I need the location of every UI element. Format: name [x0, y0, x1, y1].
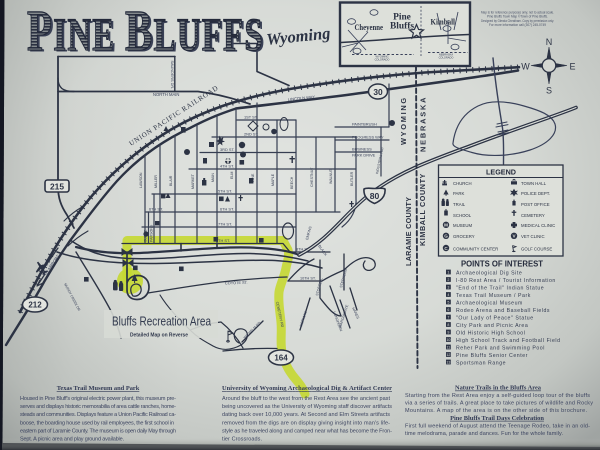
svg-text:PINE BLUFFS: PINE BLUFFS — [27, 0, 264, 63]
svg-text:Reher Park and Swimming Pool: Reher Park and Swimming Pool — [456, 345, 545, 351]
svg-text:PARK: PARK — [453, 191, 465, 196]
svg-text:1ST ST.: 1ST ST. — [244, 115, 258, 120]
svg-text:Sportsman Range: Sportsman Range — [456, 360, 506, 366]
svg-text:GOLF COURSE: GOLF COURSE — [521, 246, 552, 251]
svg-text:City Park and Picnic Area: City Park and Picnic Area — [456, 323, 528, 329]
svg-text:Pine Bluffs Trail Days Celebra: Pine Bluffs Trail Days Celebration — [450, 415, 544, 422]
svg-text:High School Track and Football: High School Track and Football Field — [456, 338, 561, 344]
svg-text:MEDICAL CLINIC: MEDICAL CLINIC — [521, 223, 555, 228]
svg-text:Nature Trails in the Bluffs Ar: Nature Trails in the Bluffs Area — [455, 385, 542, 392]
svg-text:10: 10 — [446, 338, 450, 342]
svg-text:MAIN: MAIN — [211, 173, 215, 182]
svg-text:7TH ST.: 7TH ST. — [218, 222, 232, 227]
svg-text:GROCERY: GROCERY — [453, 234, 475, 239]
svg-text:COLORADO: COLORADO — [439, 56, 454, 60]
svg-text:Housed in Pine Bluff's origina: Housed in Pine Bluff's original electric… — [20, 396, 176, 402]
svg-text:serves and displays historic: serves and displays historic memorabilia… — [20, 404, 176, 410]
svg-text:Sept. A picnic area and play g: Sept. A picnic area and play ground avai… — [20, 437, 124, 443]
svg-text:Archaeological Museum: Archaeological Museum — [456, 300, 523, 306]
svg-text:TRAIL: TRAIL — [453, 202, 466, 207]
svg-text:PARK DRIVE: PARK DRIVE — [352, 153, 376, 158]
svg-text:University of Wyoming Archaeol: University of Wyoming Archaeological Dig… — [222, 385, 392, 392]
svg-text:3: 3 — [447, 285, 449, 289]
svg-text:5TH ST.: 5TH ST. — [218, 189, 232, 194]
svg-text:steads and communities. Displ: steads and communities. Displays feature… — [20, 412, 176, 418]
svg-text:via a series of trails. A gre: via a series of trails. A great place to… — [405, 400, 593, 406]
svg-text:LAWSON: LAWSON — [139, 172, 143, 188]
svg-text:1: 1 — [447, 270, 449, 274]
svg-text:POINTS OF INTEREST: POINTS OF INTEREST — [461, 260, 543, 269]
svg-text:164: 164 — [274, 353, 288, 362]
svg-text:9: 9 — [447, 330, 449, 334]
svg-text:COMMUNITY CENTER: COMMUNITY CENTER — [453, 246, 498, 251]
svg-text:8TH ST.: 8TH ST. — [216, 238, 230, 243]
svg-text:6TH ST.: 6TH ST. — [149, 207, 163, 212]
svg-text:N: N — [546, 37, 553, 47]
svg-text:LEGEND: LEGEND — [486, 168, 517, 177]
svg-text:tier Crossroads.: tier Crossroads. — [222, 437, 262, 443]
svg-text:MARKET: MARKET — [191, 173, 195, 189]
svg-text:time melodrama, parade and dan: time melodrama, parade and dances. Fun f… — [405, 431, 563, 437]
svg-text:COLORADO: COLORADO — [375, 58, 390, 62]
svg-text:7: 7 — [447, 315, 449, 319]
svg-text:being uncovered as the Univers: being uncovered as the University of Wyo… — [222, 404, 392, 410]
svg-text:Texas Trail Museum and Park: Texas Trail Museum and Park — [57, 385, 140, 392]
svg-text:MAPLE: MAPLE — [271, 173, 275, 186]
svg-text:6TH ST.: 6TH ST. — [220, 207, 234, 212]
svg-text:4TH ST.: 4TH ST. — [220, 164, 234, 169]
svg-text:dating back over 10,000 years.: dating back over 10,000 years. At Second… — [222, 412, 390, 418]
svg-text:Starting from the Rest Area en: Starting from the Rest Area enjoy a self… — [405, 393, 590, 399]
svg-text:S: S — [546, 86, 552, 96]
svg-text:I-80 Rest Area / Tourist Infor: I-80 Rest Area / Tourist Information — [456, 278, 556, 284]
svg-text:212: 212 — [28, 300, 42, 309]
svg-text:"End of the Trail" Indian Stat: "End of the Trail" Indian Statue — [456, 285, 544, 291]
svg-text:Old Historic High School: Old Historic High School — [456, 330, 525, 336]
svg-text:MUSEUM: MUSEUM — [453, 223, 473, 228]
svg-text:boose, the boarding house used: boose, the boarding house used by rail e… — [20, 420, 174, 426]
svg-text:4: 4 — [447, 293, 449, 297]
svg-text:For more information call (307: For more information call (307) 245-0749 — [489, 23, 546, 27]
svg-text:BUTLER: BUTLER — [350, 171, 354, 186]
svg-text:80: 80 — [370, 191, 380, 201]
svg-text:13: 13 — [446, 360, 450, 364]
svg-text:CEMETERY: CEMETERY — [521, 213, 545, 218]
svg-text:CHURCH: CHURCH — [453, 181, 472, 186]
svg-text:PROGRESS WAY: PROGRESS WAY — [352, 135, 384, 140]
svg-text:Mountains. A map of the area: Mountains. A map of the area is on the o… — [405, 408, 587, 414]
svg-text:2: 2 — [447, 278, 449, 282]
svg-text:8: 8 — [447, 323, 449, 327]
svg-text:W: W — [521, 62, 530, 72]
svg-text:SAUNDERS DR.: SAUNDERS DR. — [170, 61, 174, 90]
svg-text:NORTH MAIN: NORTH MAIN — [153, 92, 179, 97]
svg-text:11: 11 — [447, 345, 451, 349]
svg-text:5: 5 — [447, 300, 449, 304]
svg-text:LARAMIE COUNTY: LARAMIE COUNTY — [404, 197, 413, 266]
svg-text:Texas Trail Museum / Park: Texas Trail Museum / Park — [456, 293, 531, 299]
svg-text:WALNUT: WALNUT — [329, 168, 333, 184]
svg-text:Archaeological Dig Site: Archaeological Dig Site — [456, 270, 522, 276]
svg-text:Bluffs Recreation Area: Bluffs Recreation Area — [112, 314, 212, 329]
svg-text:PAINTBRUSH: PAINTBRUSH — [352, 122, 377, 127]
svg-text:30: 30 — [373, 87, 383, 97]
svg-text:WYOMING: WYOMING — [399, 96, 408, 145]
svg-text:Kimball: Kimball — [431, 18, 456, 27]
svg-text:"Our Lady of Peace" Statue: "Our Lady of Peace" Statue — [456, 315, 534, 321]
svg-text:POLICE DEPT.: POLICE DEPT. — [521, 191, 550, 196]
svg-text:eastern part of Laramie County: eastern part of Laramie County. The muse… — [20, 428, 176, 434]
svg-text:BUSINESS: BUSINESS — [352, 147, 372, 152]
svg-text:10TH ST.: 10TH ST. — [300, 277, 316, 281]
svg-text:BEECH: BEECH — [290, 176, 294, 189]
svg-text:COYOTE ST.: COYOTE ST. — [225, 281, 248, 286]
svg-text:SCHOOL: SCHOOL — [453, 213, 472, 218]
svg-text:6: 6 — [447, 308, 449, 312]
svg-text:removed from the digs are on d: removed from the digs are on display giv… — [222, 420, 390, 426]
svg-text:Pine Bluffs Senior Center: Pine Bluffs Senior Center — [456, 353, 528, 359]
svg-text:M: M — [444, 223, 448, 228]
svg-text:CHESTNUT: CHESTNUT — [310, 167, 314, 187]
svg-text:VET CLINIC: VET CLINIC — [521, 234, 545, 239]
svg-text:E: E — [569, 62, 575, 72]
svg-text:MILLER: MILLER — [154, 175, 158, 188]
svg-text:Detailed Map on Reverse: Detailed Map on Reverse — [130, 333, 188, 339]
svg-text:ELM: ELM — [230, 172, 234, 179]
svg-text:Rodeo Arena and Baseball Field: Rodeo Arena and Baseball Fields — [456, 308, 550, 314]
svg-text:2ND ST.: 2ND ST. — [244, 132, 258, 137]
svg-text:TOWN HALL: TOWN HALL — [521, 181, 547, 186]
svg-text:NEBRASKA: NEBRASKA — [419, 96, 428, 152]
svg-text:PARSONS: PARSONS — [150, 224, 154, 242]
svg-text:Around the bluff to the west f: Around the bluff to the west from the Re… — [222, 396, 390, 402]
svg-text:Cheyenne: Cheyenne — [355, 23, 384, 32]
svg-text:G: G — [444, 234, 448, 239]
svg-text:215: 215 — [50, 182, 64, 192]
svg-text:style as he traveled along an: style as he traveled along and camped ne… — [222, 428, 392, 434]
svg-text:12: 12 — [446, 353, 450, 357]
svg-text:POST OFFICE: POST OFFICE — [521, 202, 550, 207]
svg-text:BLAIR: BLAIR — [169, 175, 173, 186]
svg-text:KIMBALL COUNTY: KIMBALL COUNTY — [418, 173, 427, 246]
svg-text:3RD ST.: 3RD ST. — [220, 147, 234, 152]
svg-text:First full weekend of August a: First full weekend of August attend the … — [405, 424, 590, 430]
